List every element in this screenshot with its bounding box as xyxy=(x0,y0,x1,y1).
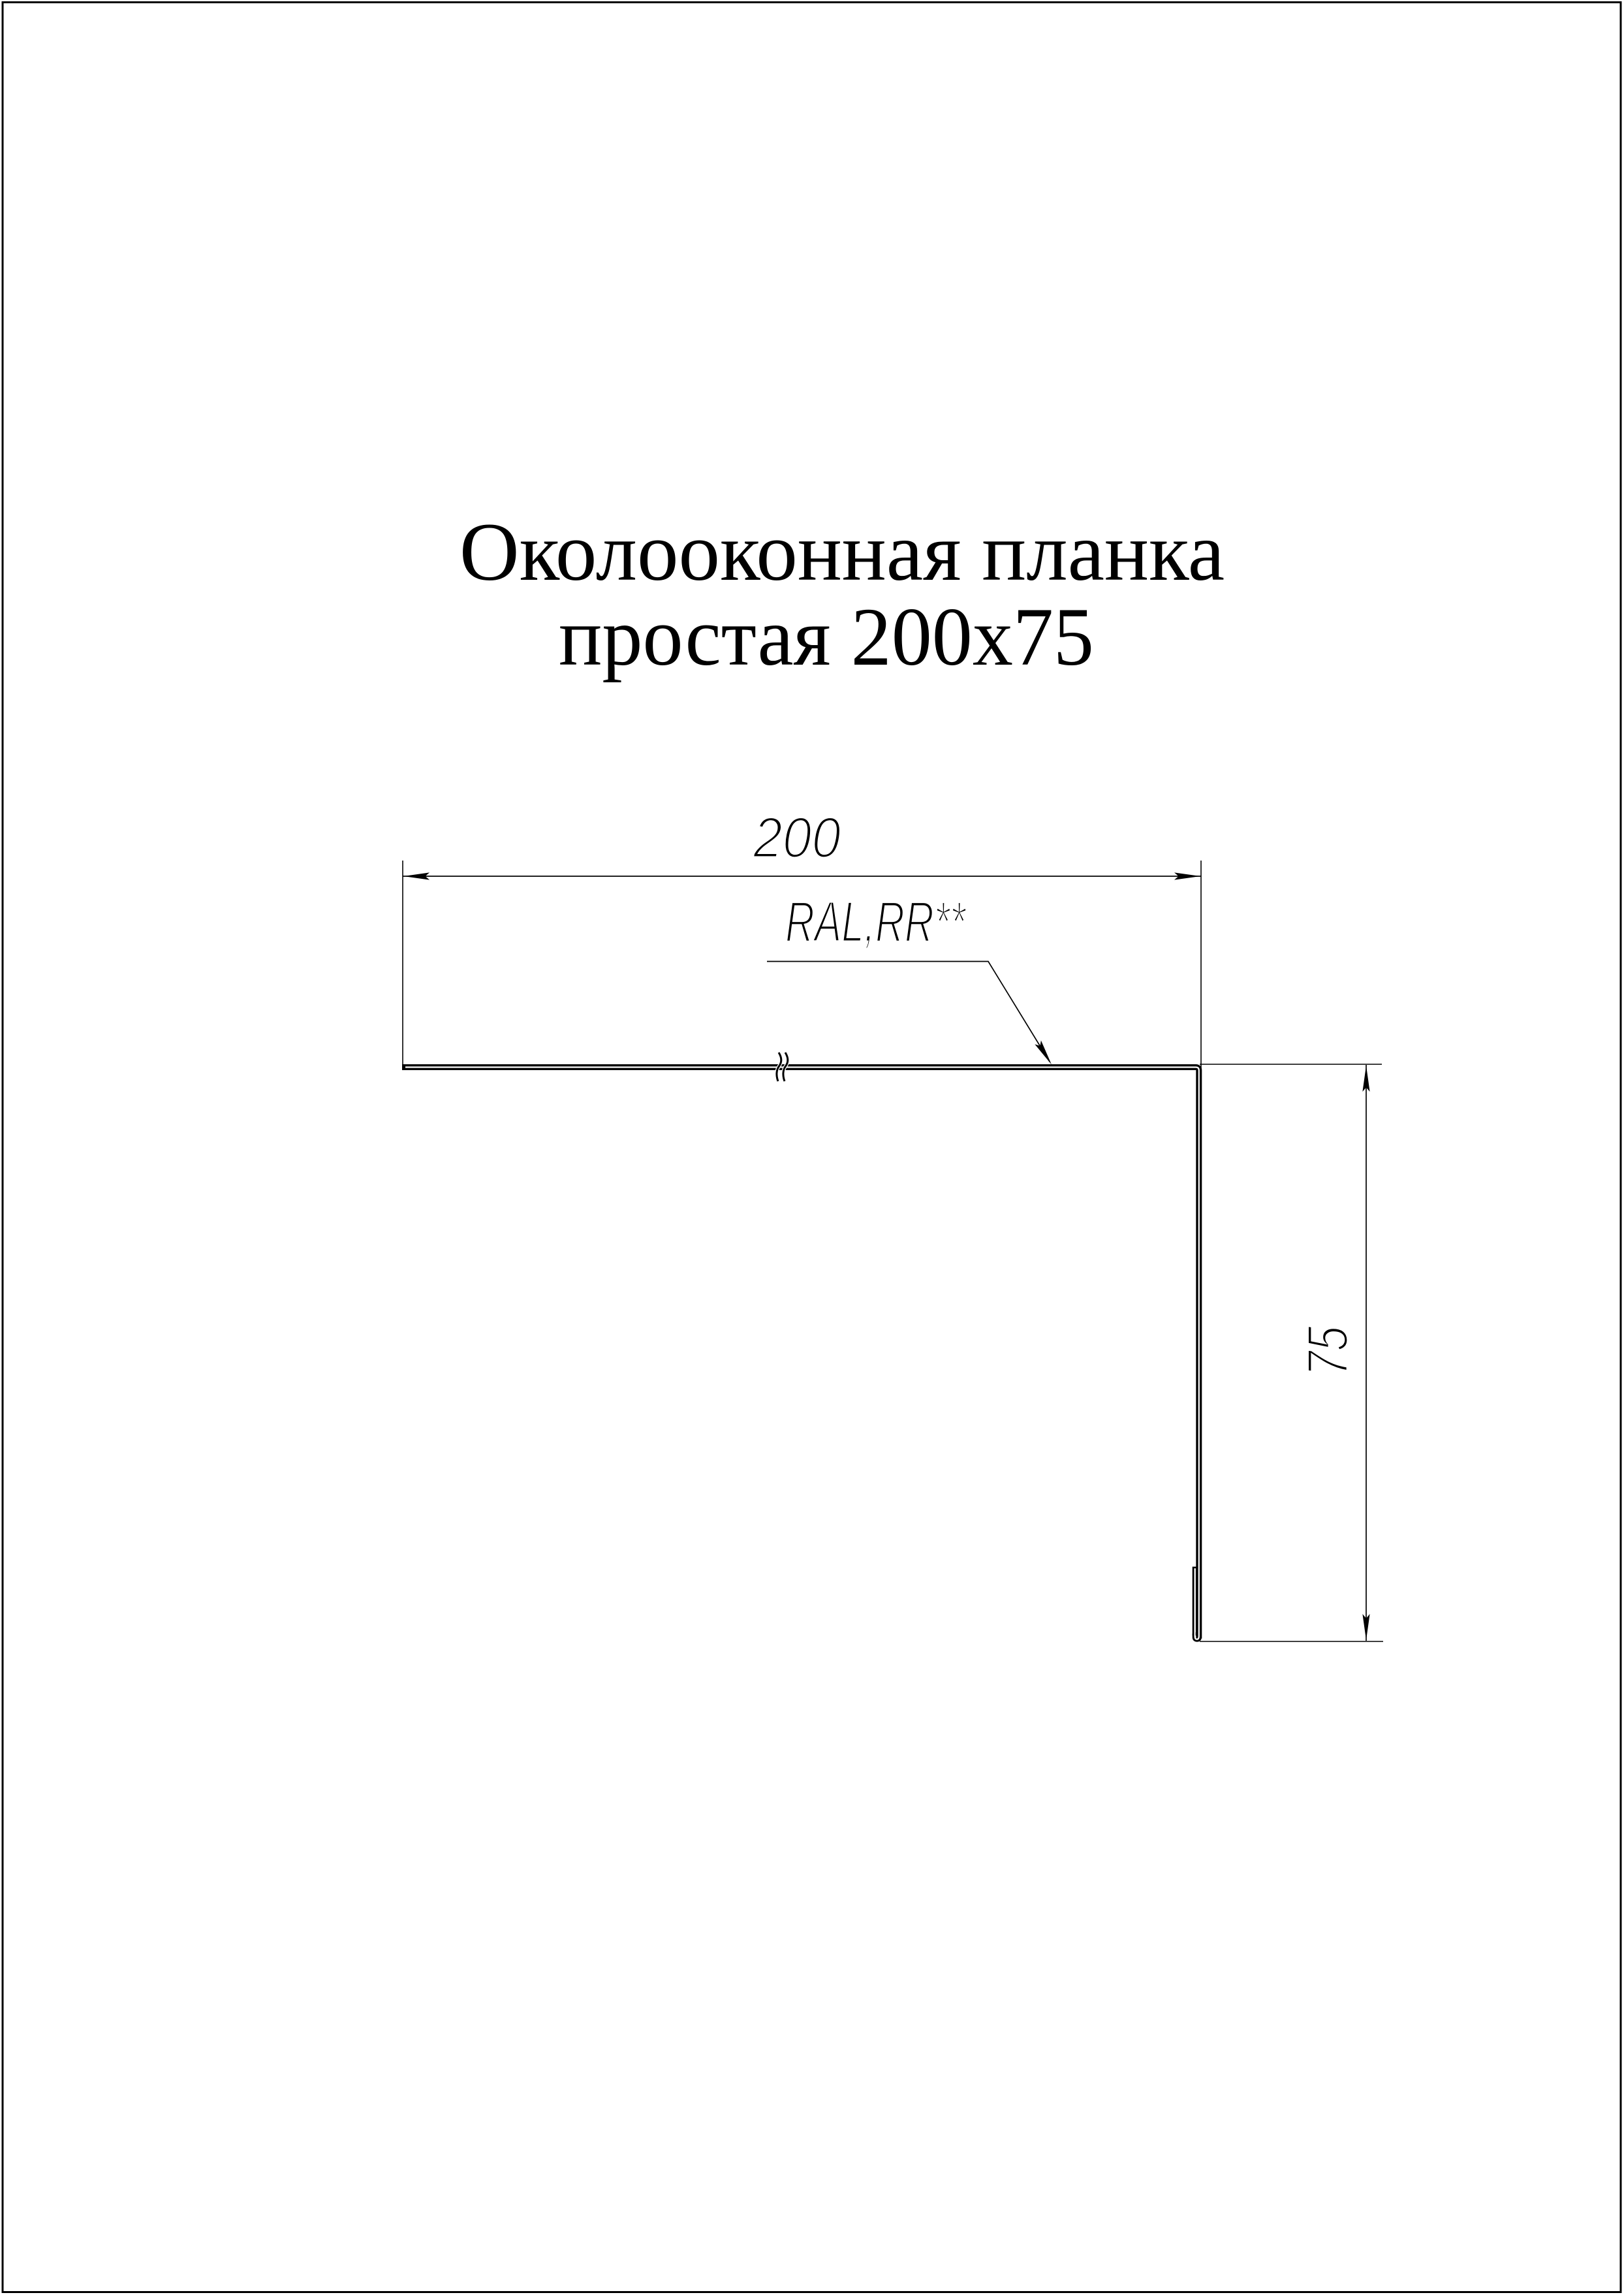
svg-text:RAL,RR**: RAL,RR** xyxy=(785,889,967,954)
svg-text:простая 200х75: простая 200х75 xyxy=(559,592,1094,683)
svg-text:75: 75 xyxy=(1295,1325,1360,1376)
svg-text:Околооконная планка: Околооконная планка xyxy=(460,507,1225,598)
svg-text:200: 200 xyxy=(753,805,841,870)
